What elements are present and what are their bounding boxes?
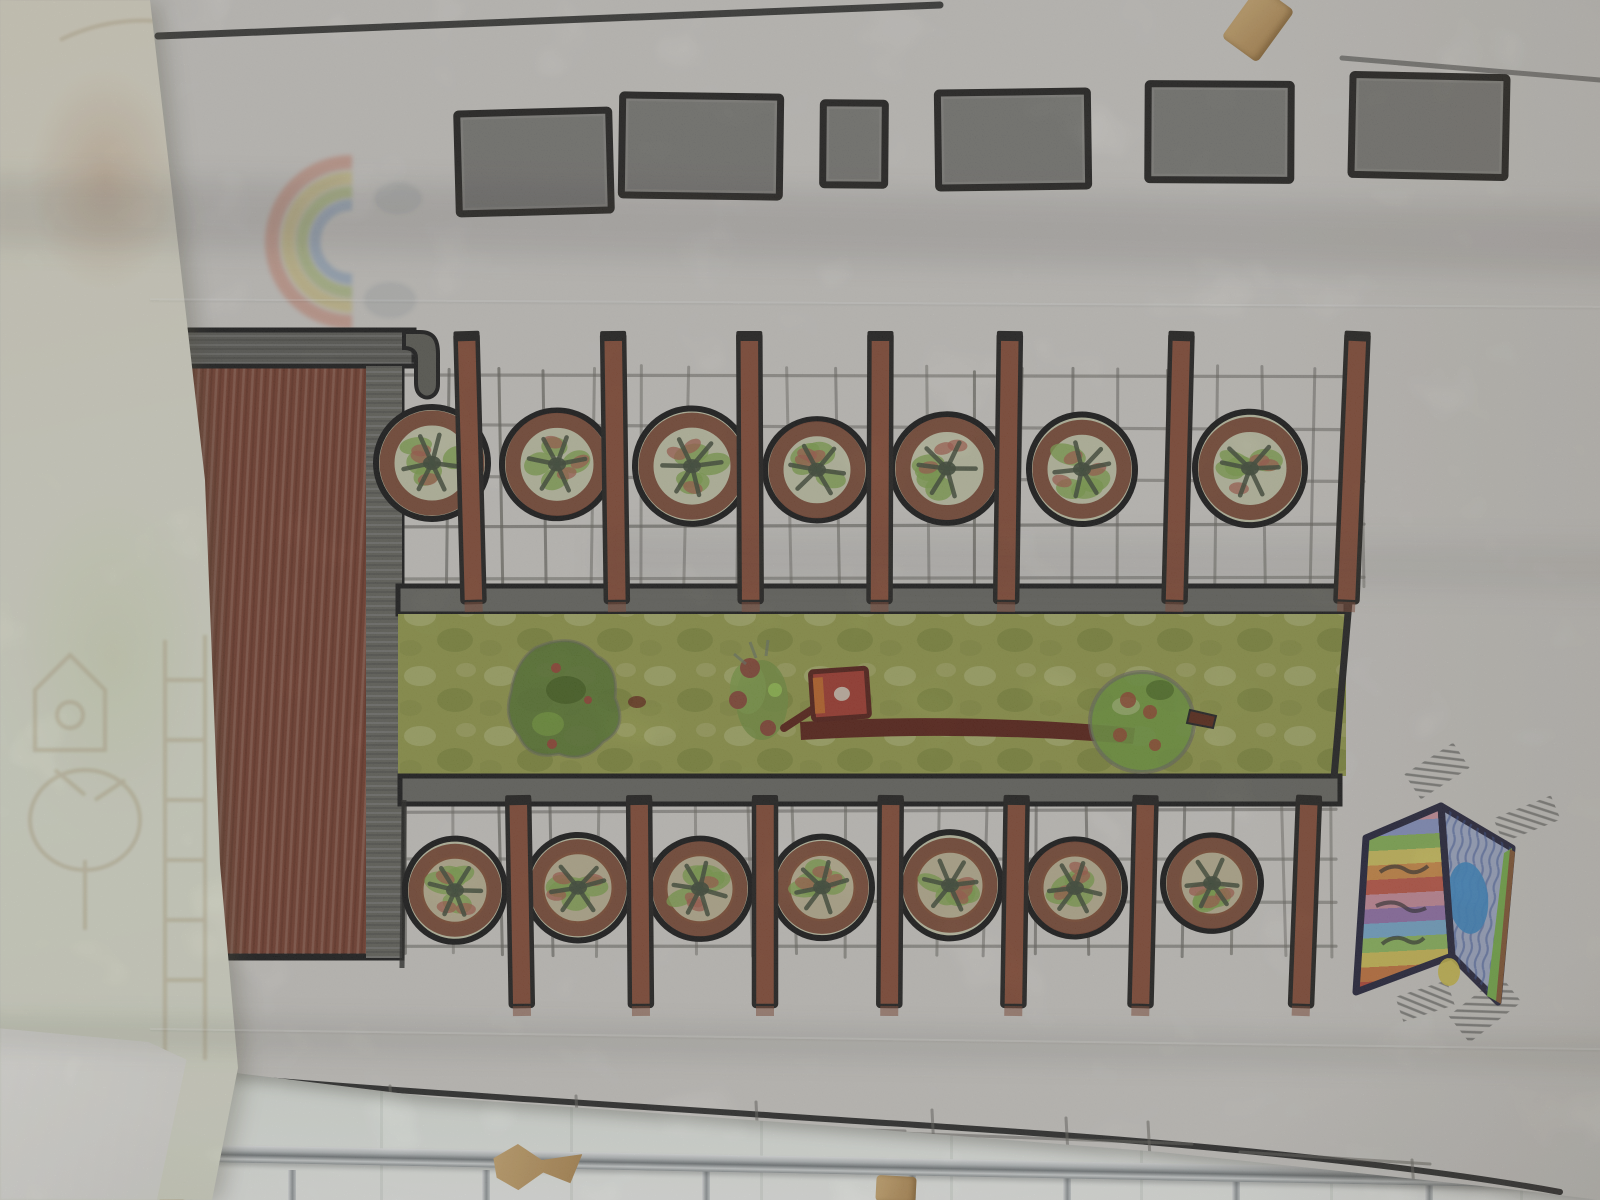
tree-top-view [772,837,872,939]
fence-post [866,331,893,612]
rainbow-arc [315,205,352,279]
fence-post [876,795,904,1016]
pencil-grid-line [1331,803,1332,957]
fence-post [993,331,1023,612]
bush-brown-dot [628,696,646,708]
shaded-rectangle [457,110,612,214]
paper-top-marker-lines [158,5,1600,80]
hand-drawing-artwork [0,0,1600,1200]
tree-top-view [891,413,1004,524]
pencil-grid-line [1310,369,1315,587]
shaded-rectangle [823,103,886,186]
fence-post [505,795,535,1016]
pencil-grid-line [400,809,1336,812]
site-plan [178,330,1371,1016]
shaded-rectangle [1351,74,1507,177]
shaded-rectangle [937,91,1088,188]
tree-top-view [524,833,633,943]
fence-post [1000,795,1029,1016]
fence-post [600,331,630,612]
tree-top-view [765,419,869,521]
pencil-tape-mark [1395,980,1454,1021]
pencil-grid-line [1281,799,1285,956]
pencil-tape-mark [1405,743,1470,800]
shaded-rectangle [1148,84,1292,181]
tree-top-view [895,828,1005,942]
fence-post [1127,795,1158,1017]
fence-post [626,795,654,1016]
rainbow-panel [1356,806,1452,992]
tree-top-view [1024,838,1127,938]
shaded-rectangles-row [457,74,1507,214]
fence-post [1288,795,1322,1017]
shaded-rectangle [621,95,780,197]
tree-top-view [1160,832,1264,934]
tree-top-view [403,837,507,944]
photo-of-childs-site-plan-drawing [0,0,1600,1200]
tree-top-view [1025,411,1138,527]
tree-top-view [1193,409,1308,527]
tree-top-view [632,405,753,527]
tree-top-view [646,836,754,942]
fence-post [453,331,486,613]
fence-post [736,331,763,612]
tree-top-view [497,405,617,523]
pencil-tape-mark [1493,795,1560,842]
folded-rainbow-card [1356,743,1561,1043]
fence-post [752,795,778,1016]
